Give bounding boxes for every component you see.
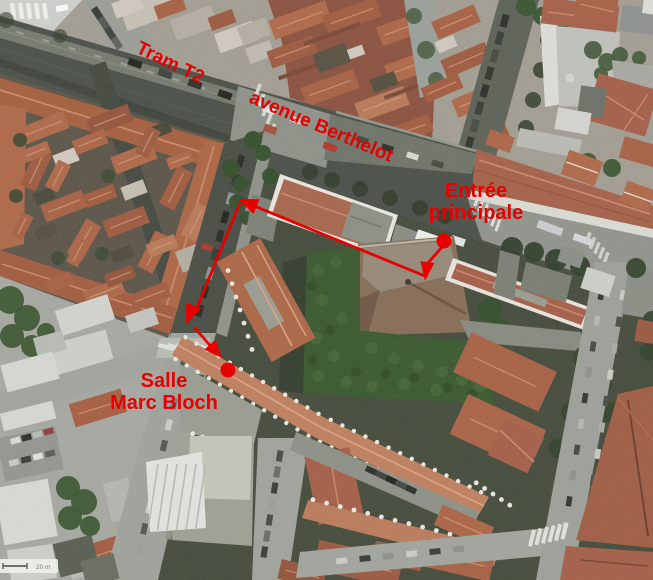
svg-text:Marc Bloch: Marc Bloch — [110, 392, 218, 414]
svg-text:Salle: Salle — [141, 370, 188, 392]
svg-text:principale: principale — [429, 202, 523, 224]
svg-text:Entrée: Entrée — [445, 180, 507, 202]
